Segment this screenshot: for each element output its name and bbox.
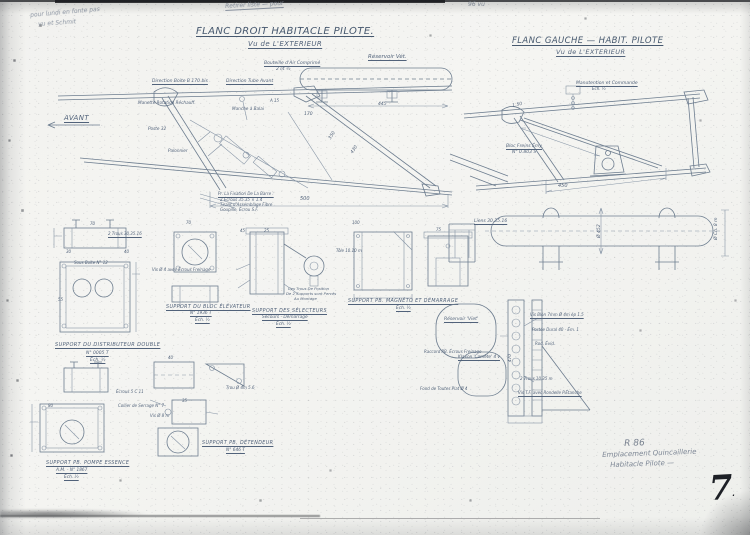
caption-selecteurs-sub: Secours - Démarrage [262, 316, 308, 321]
label-tole: Tôle 10.10 m [336, 249, 362, 254]
dim-170: 170 [304, 112, 313, 117]
caption-distributeur: SUPPORT DU DISTRIBUTEUR DOUBLE [55, 343, 160, 349]
dim-cylinder-dia: Ø 452 [597, 224, 602, 238]
detail-pompe-drawing [30, 362, 140, 458]
label-reservoir-viet: Réservoir 'Viet' [444, 317, 478, 322]
label-ecrous: Écrous 5 C 11 [116, 390, 144, 395]
scan-edge-bottom-line [0, 515, 320, 517]
corner-line2: Habitacle Pilote — [610, 459, 674, 469]
label-trous30: 2 Trous 30.35.16 [108, 232, 142, 237]
truss-members [154, 86, 440, 196]
detail-dim: 40 [124, 250, 129, 255]
dim-470: 470 [508, 354, 513, 362]
pencil-note-line2: vu et Schmit [38, 19, 76, 29]
detail-selecteurs-drawing [226, 224, 338, 316]
note-fixation-4: Goupille, Écrou S.F. [220, 208, 258, 213]
scan-edge-top [0, 0, 750, 2]
dim-445: 445 [378, 102, 387, 107]
page-number: 7 [708, 469, 734, 509]
detail-dim: 100 [352, 221, 360, 226]
label-direction-tube: Direction Tube Avant [226, 79, 273, 84]
label-klaxon: Klaxon 'Comète' 4 v [458, 355, 500, 360]
left-truss-drawing [50, 62, 460, 212]
clamp-mounts [539, 208, 679, 270]
caption-selecteurs-ech: Éch. ½ [276, 323, 291, 328]
caption-detendeur: SUPPORT PB. DÉTENDEUR [202, 441, 273, 447]
title-left: FLANC DROIT HABITACLE PILOTE. [196, 26, 374, 38]
corner-line1: Emplacement Quincaillerie [602, 448, 697, 459]
caption-selecteurs: SUPPORT DES SÉLECTEURS [252, 309, 327, 315]
label-trous10: 2 Trous 10.35 m [520, 377, 553, 382]
caption-pompe: SUPPORT PB. POMPE ESSENCE [46, 461, 129, 467]
blueprint-sheet: pour lundi en fonte pas vu et Schmit Ret… [0, 0, 750, 535]
detail-dim: 75 [436, 228, 441, 233]
dim-cylinder-dia2: Ø Ch. 8 m [714, 217, 719, 240]
air-cylinder-drawing [443, 196, 735, 274]
right-truss-drawing [450, 80, 715, 198]
label-poste: Poste 32 [148, 127, 166, 132]
label-rad: Rod. Évid. [535, 342, 555, 347]
detail-dim: 25 [264, 229, 269, 234]
top-mount [566, 86, 580, 110]
detail-dim: 35 [182, 399, 187, 404]
label-vis-ecrous: Vis Ø 4 avec Écrous Freinage [152, 268, 210, 273]
label-palonnier: Palonnier [168, 149, 188, 154]
detail-dim: 80 [48, 404, 53, 409]
note-montage-3: Au Montage [294, 297, 317, 301]
dimension-lines [520, 128, 666, 194]
caption-detendeur-ref: N° 646 T [226, 449, 245, 454]
label-bloc-freins-ref: N° 0.803 S [512, 150, 536, 155]
caption-magneto-ech: Éch. ½ [396, 307, 411, 312]
detail-dim: 40 [168, 356, 173, 361]
caption-pompe-ref: A.M. - N° 1867 [56, 469, 87, 474]
dim-a15: A 15 [270, 99, 279, 104]
title-right-sub: Vu de L'EXTERIEUR [556, 49, 625, 56]
title-left-sub: Vu de L'EXTERIEUR [248, 40, 322, 48]
label-collier: Collier de Serrage N° 7 [118, 404, 164, 409]
dimension-lines [599, 208, 729, 256]
pencil-note-top: Retirer liste — pour [225, 1, 284, 11]
label-sous-boite: Sous Boîte N° 12 [74, 261, 108, 266]
corner-ref: R 86 [624, 438, 645, 449]
label-direction-boite: Direction Boite B 170 bis [152, 79, 208, 84]
pencil-mark: 96 vu [468, 2, 485, 9]
detail-dim: 30 [66, 250, 71, 255]
brake-bracket [590, 146, 626, 176]
detail-dim: 70 [186, 221, 191, 226]
detail-dim: 45 [240, 229, 245, 234]
paper-specks [0, 0, 1, 1]
detail-dim: 55 [58, 298, 63, 303]
label-manutention: Manutention et Commande [576, 81, 638, 86]
label-vis-d8: Vis Ø 8 m [150, 414, 169, 419]
dim-500: 500 [300, 197, 310, 203]
label-manutention-ech: Éch. ½ [592, 87, 606, 92]
title-right: FLANC GAUCHE — HABIT. PILOTE [512, 37, 663, 47]
label-portee: Portée Dural 40 - Ém. 1 [532, 328, 579, 333]
caption-distributeur-ref: N° 0005 T [86, 351, 109, 356]
label-liens: Liens 30.35.16 [474, 219, 507, 224]
caption-elevateur-ref: N° 1936 T [190, 312, 212, 317]
cylinder-body [485, 216, 721, 246]
caption-elevateur-ech: Éch. ½ [195, 319, 210, 324]
caption-pompe-ech: Éch. ½ [64, 476, 79, 481]
label-manche: Manche à Balai [232, 107, 264, 112]
label-bloc-freins: Bloc Freins Émy [506, 144, 542, 149]
page-number-dot: . [732, 486, 736, 500]
dim-450: 450 [558, 184, 568, 190]
label-bouteille-2: 2 lit ½ [276, 67, 290, 72]
label-vis-blon: Vis Blon 7mm Ø 4m ép 1.5 [530, 313, 584, 318]
pencil-note-line1: pour lundi en fonte pas [30, 7, 100, 20]
label-vis-tf: Vis T.F. avec Rondelle P.Étanche [518, 391, 582, 396]
air-bottle [300, 68, 452, 102]
label-fond: Fond de Toutes Plat Ø 4 [420, 387, 467, 392]
label-manette: Manette Rotation Réchauff. [138, 101, 196, 106]
scan-smudge-bottom-left [0, 509, 150, 519]
detail-dim: 70 [90, 222, 95, 227]
scan-edge-bottom-line2 [300, 518, 600, 519]
label-bouteille-1: Bouteille d'Air Comprimé [264, 61, 320, 66]
label-trou-d4: Trou Ø 4m 5.6 [226, 386, 255, 391]
note-fixation-1: Pr. La Fixation De La Barre : [218, 192, 274, 197]
detail-magneto-drawing [344, 218, 476, 304]
label-reservoir: Réservoir Vét. [368, 54, 407, 60]
label-raccord: Raccord PB. Écrous Freinage [424, 350, 481, 355]
frame [450, 90, 710, 190]
